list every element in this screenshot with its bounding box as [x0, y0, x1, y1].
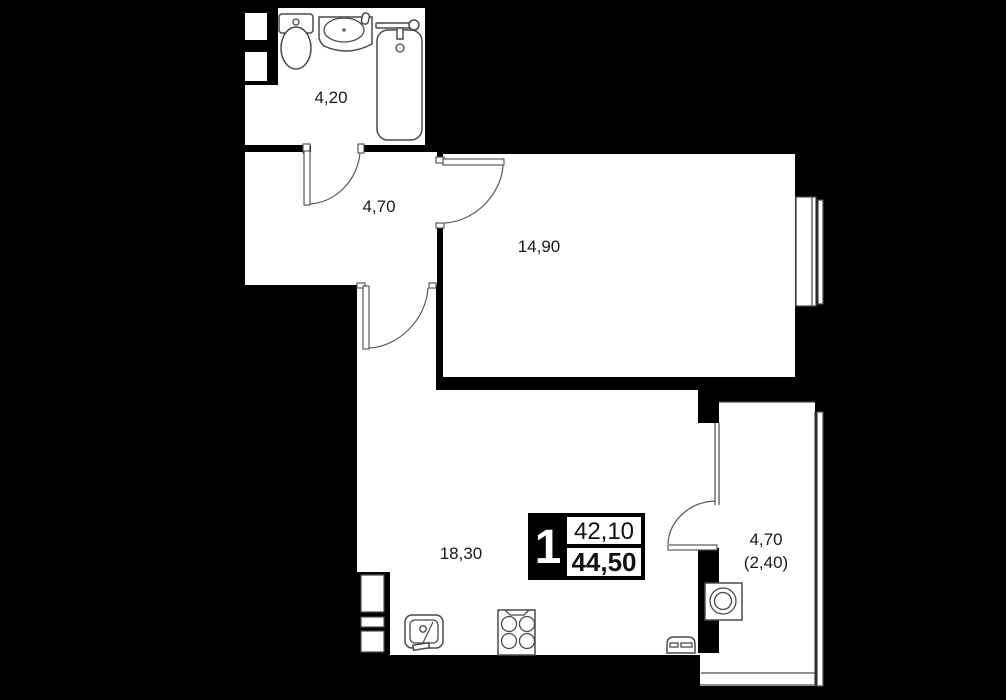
- door-bathroom-leaf: [304, 151, 310, 205]
- bathtub-faucet-stem: [397, 28, 403, 39]
- bathtub-faucet-bar: [376, 23, 413, 28]
- stove-icon: [498, 610, 535, 655]
- label-living-area: 18,30: [440, 544, 483, 563]
- label-hallway-area: 4,70: [362, 197, 395, 216]
- shaft-box-top: [245, 13, 267, 40]
- doorway-bedroom-opening: [436, 162, 444, 223]
- bathtub-icon: [376, 20, 422, 140]
- label-balcony-area: 4,70: [749, 530, 782, 549]
- toilet-icon: [279, 14, 313, 69]
- door-living-frame-right: [429, 283, 436, 288]
- badge-rooms-count: 1: [535, 521, 562, 574]
- washing-machine-icon: [705, 583, 742, 620]
- wall-living-balcony-top: [698, 390, 716, 423]
- bedroom-window: [796, 197, 823, 306]
- room-hallway: [245, 152, 437, 285]
- bedroom-window-outer-frame: [818, 200, 823, 304]
- kitchen-sink-icon: [405, 615, 443, 650]
- badge-area-top: 42,10: [574, 518, 634, 545]
- shaft-box-bottom: [245, 52, 267, 81]
- toilet-bowl: [281, 27, 311, 69]
- door-balcony-leaf: [668, 545, 717, 550]
- unit-info-badge: 1 42,10 44,50: [528, 513, 645, 580]
- label-bathroom-area: 4,20: [314, 88, 347, 107]
- bathtub-faucet-knob: [409, 20, 419, 30]
- door-bedroom-leaf: [443, 159, 504, 165]
- bathtub-body: [377, 30, 422, 140]
- kitchen-shaft-box-2: [361, 617, 384, 627]
- sink-tap: [361, 12, 370, 24]
- floor-plan-svg: 4,20 4,70 14,90 18,30 4,70 (2,40) 1 42,1…: [0, 0, 1006, 700]
- label-bedroom-area: 14,90: [518, 237, 561, 256]
- sink-drain-dot: [342, 28, 345, 31]
- balcony-outer-glass-strip: [817, 412, 823, 686]
- door-bathroom-frame-right: [358, 144, 364, 153]
- kitchen-shaft-box-3: [361, 631, 384, 652]
- doorway-bathroom-opening: [311, 144, 361, 153]
- balcony-under-wall-slab: [700, 653, 719, 686]
- door-living-leaf: [363, 286, 369, 349]
- floor-plan-canvas: 4,20 4,70 14,90 18,30 4,70 (2,40) 1 42,1…: [0, 0, 1006, 700]
- oven-icon: [667, 637, 695, 653]
- badge-area-bottom: 44,50: [571, 547, 636, 577]
- door-bedroom-frame-bottom: [436, 223, 444, 228]
- label-balcony-area-reduced: (2,40): [744, 553, 788, 572]
- room-bedroom: [443, 154, 795, 377]
- bedroom-window-sill: [796, 197, 816, 306]
- bathroom-sink-icon: [319, 12, 372, 51]
- kitchen-shaft-box-1: [361, 575, 384, 612]
